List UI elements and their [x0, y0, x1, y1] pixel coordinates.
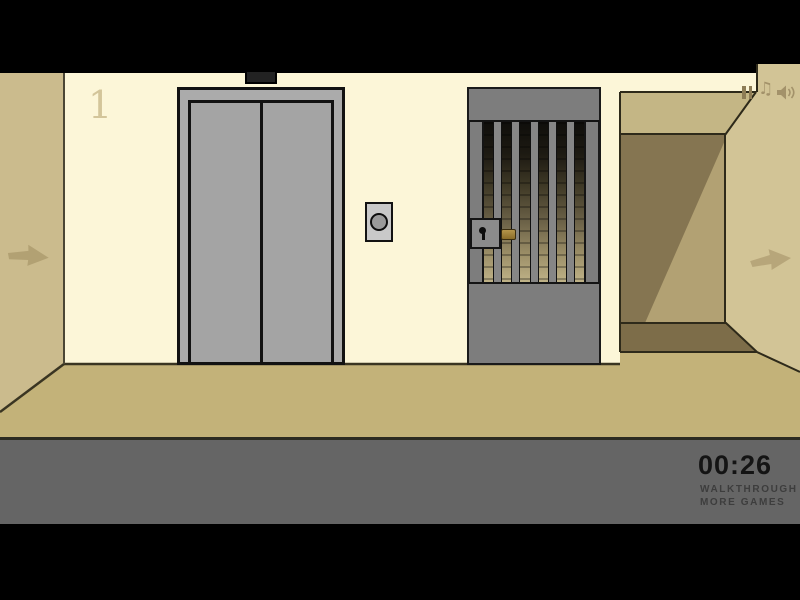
- navigate-left-button[interactable]: [4, 233, 55, 275]
- gate-bar: [530, 122, 539, 282]
- game-stage: 1: [0, 0, 800, 600]
- floor: [0, 353, 800, 438]
- floor-number-label: 1: [88, 86, 112, 124]
- gate-gap: [502, 122, 511, 282]
- gate-header-bar: [469, 89, 599, 122]
- game-timer: 00:26: [698, 450, 772, 481]
- walkthrough-link[interactable]: WALKTHROUGH: [700, 484, 798, 495]
- more-games-link[interactable]: MORE GAMES: [700, 497, 785, 508]
- gate-bar: [566, 122, 575, 282]
- right-arrow-icon: [747, 239, 795, 277]
- navigate-right-button[interactable]: [747, 239, 795, 277]
- gate-lock-box[interactable]: [470, 218, 501, 249]
- pause-icon[interactable]: [742, 86, 752, 99]
- gate-gap: [557, 122, 566, 282]
- gate-bar: [493, 122, 502, 282]
- elevator-door-right[interactable]: [261, 103, 331, 362]
- gate-bars: [469, 122, 599, 282]
- music-note-icon[interactable]: ♫: [758, 81, 773, 98]
- keyhole-stem: [482, 232, 485, 240]
- gate-bar: [548, 122, 557, 282]
- speaker-icon[interactable]: [776, 85, 795, 105]
- gate-post-left: [469, 122, 484, 282]
- gate-gap: [539, 122, 548, 282]
- gate-post-right: [584, 122, 599, 282]
- gate-bar: [511, 122, 520, 282]
- gate-gap: [520, 122, 529, 282]
- elevator-door-left[interactable]: [191, 103, 261, 362]
- elevator-call-button[interactable]: [370, 213, 388, 231]
- elevator-doors[interactable]: [188, 100, 334, 365]
- gate-gap: [484, 122, 493, 282]
- gate-lower-panel: [469, 282, 599, 363]
- gate-gap: [575, 122, 584, 282]
- stairwell-gate[interactable]: [467, 87, 601, 365]
- elevator-call-plate: [365, 202, 393, 242]
- elevator-floor-indicator: [245, 70, 277, 84]
- elevator-door-seam: [260, 103, 263, 362]
- gate-brass-latch[interactable]: [501, 229, 516, 240]
- left-arrow-icon: [4, 233, 55, 275]
- footer-band: [0, 437, 800, 524]
